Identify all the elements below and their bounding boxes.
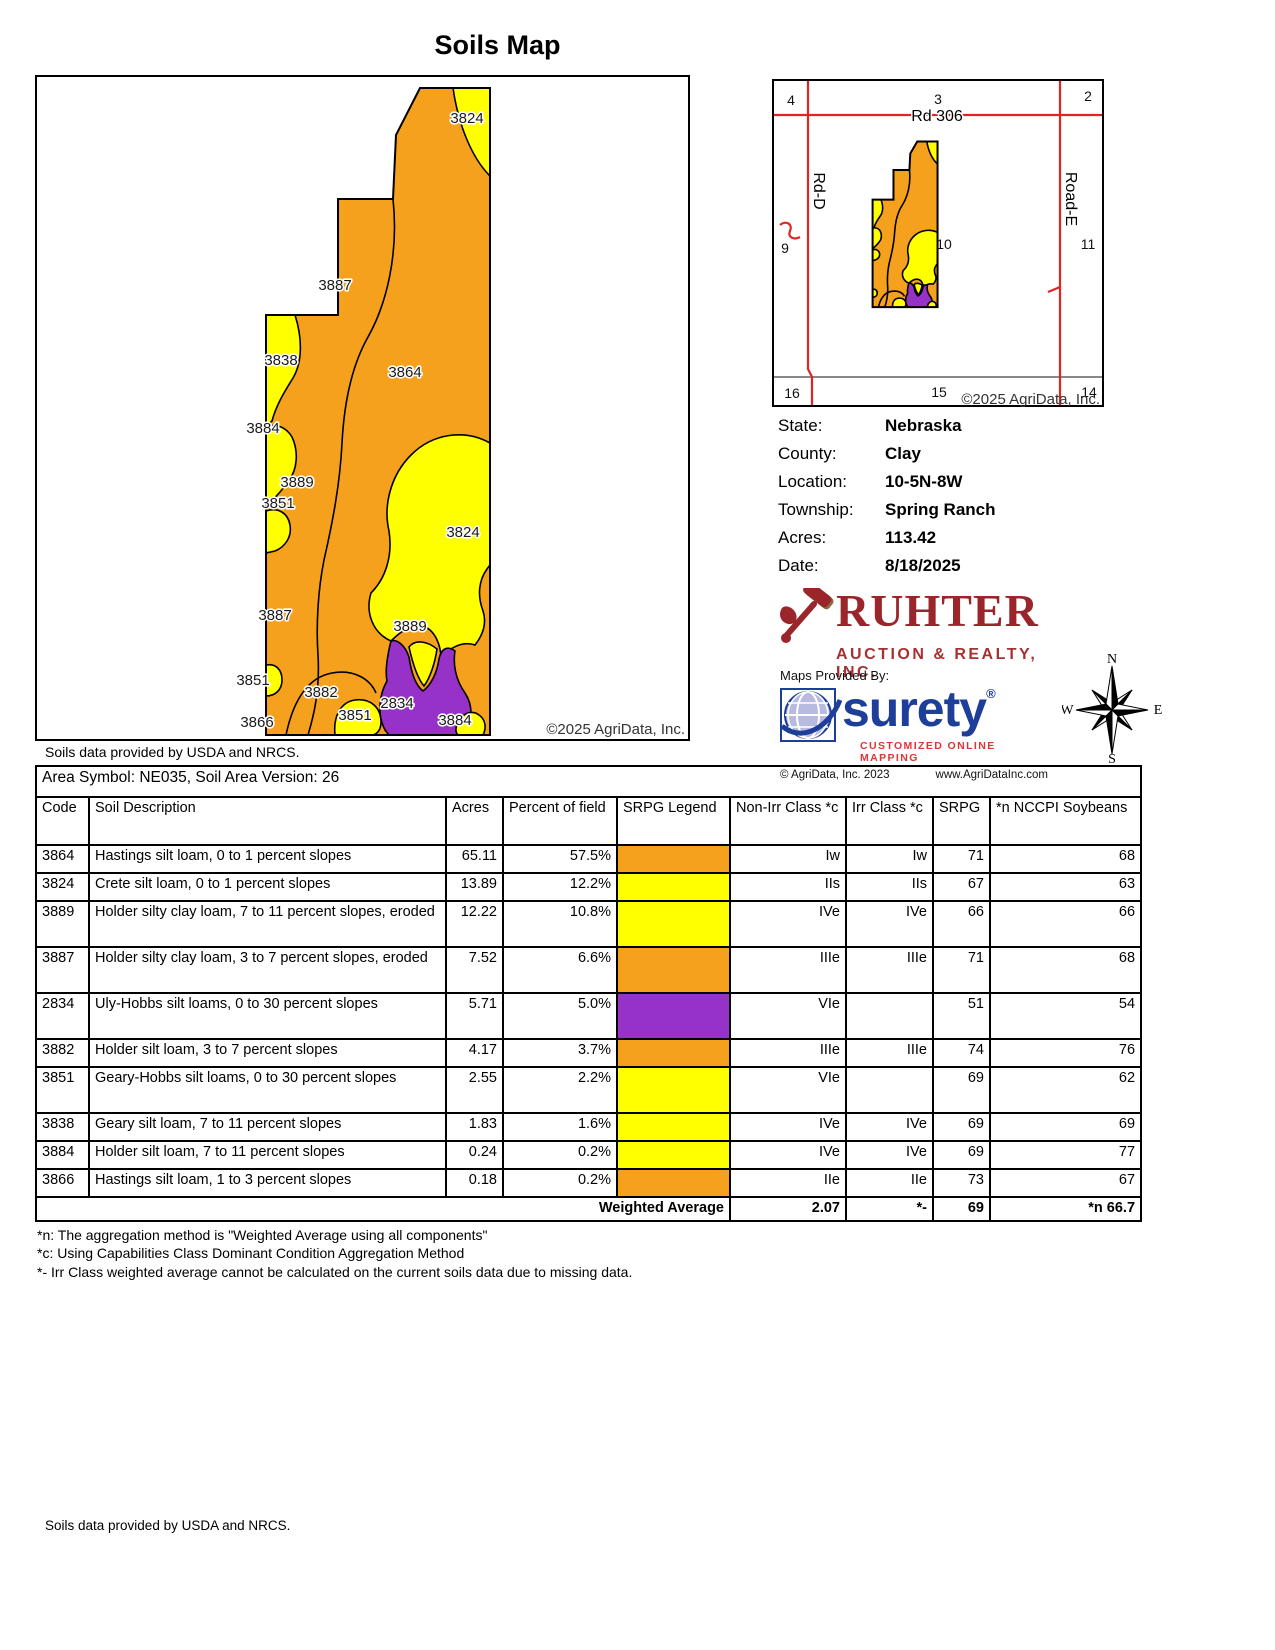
compass-e: E [1154,703,1162,718]
cell-non-irr: IVe [730,901,846,947]
cell-acres: 65.11 [446,845,503,873]
area-symbol-row: Area Symbol: NE035, Soil Area Version: 2… [36,766,1141,797]
section-number: 15 [931,384,947,400]
locator-map: 4 3 2 9 10 11 16 15 14 Rd 306 Rd-D Road-… [772,79,1104,407]
info-row-location: Location: 10-5N-8W [778,468,1108,496]
cell-code: 2834 [36,993,89,1039]
cell-acres: 0.18 [446,1169,503,1197]
soil-label: 3824 [450,110,483,127]
soil-label: 3824 [446,524,479,541]
info-value: Nebraska [885,416,962,436]
cell-legend-swatch [617,1067,730,1113]
cell-legend-swatch [617,993,730,1039]
locator-copyright: ©2025 AgriData, Inc. [961,391,1100,407]
surety-tagline: CUSTOMIZED ONLINE MAPPING [860,740,1050,764]
cell-legend-swatch [617,1141,730,1169]
cell-code: 3824 [36,873,89,901]
col-header-srpg: SRPG [933,797,990,845]
col-header-pct: Percent of field [503,797,617,845]
soil-label: 3884 [438,712,471,729]
cell-legend-swatch [617,947,730,993]
info-row-county: County: Clay [778,440,1108,468]
table-row: 3887Holder silty clay loam, 3 to 7 perce… [36,947,1141,993]
cell-percent: 0.2% [503,1141,617,1169]
info-label: County: [778,444,885,464]
cell-percent: 10.8% [503,901,617,947]
info-label: Location: [778,472,885,492]
cell-srpg: 51 [933,993,990,1039]
gavel-icon [778,588,836,644]
col-header-acres: Acres [446,797,503,845]
cell-srpg: 73 [933,1169,990,1197]
page-title: Soils Map [0,30,995,61]
weighted-average-row: Weighted Average 2.07 *- 69 *n 66.7 [36,1197,1141,1221]
weighted-irr: *- [846,1197,933,1221]
col-header-nccpi: *n NCCPI Soybeans [990,797,1141,845]
table-row: 3866Hastings silt loam, 1 to 3 percent s… [36,1169,1141,1197]
compass-w: W [1062,703,1074,718]
cell-description: Hastings silt loam, 0 to 1 percent slope… [89,845,446,873]
cell-irr: Iw [846,845,933,873]
cell-non-irr: VIe [730,1067,846,1113]
cell-non-irr: IIe [730,1169,846,1197]
cell-irr: IVe [846,1113,933,1141]
cell-code: 3887 [36,947,89,993]
soil-table-section: Area Symbol: NE035, Soil Area Version: 2… [35,765,1140,1222]
table-row: 3884Holder silt loam, 7 to 11 percent sl… [36,1141,1141,1169]
table-row: 3824Crete silt loam, 0 to 1 percent slop… [36,873,1141,901]
cell-nccpi: 68 [990,947,1141,993]
info-row-state: State: Nebraska [778,412,1108,440]
soil-label: 3838 [264,352,297,369]
cell-nccpi: 66 [990,901,1141,947]
cell-irr [846,993,933,1039]
cell-percent: 6.6% [503,947,617,993]
info-value: 113.42 [885,528,936,548]
cell-code: 3884 [36,1141,89,1169]
cell-non-irr: Iw [730,845,846,873]
col-header-irr: Irr Class *c [846,797,933,845]
cell-irr: IVe [846,901,933,947]
section-number: 4 [787,92,795,108]
soil-label: 3866 [240,714,273,731]
cell-acres: 13.89 [446,873,503,901]
cell-code: 3838 [36,1113,89,1141]
info-value: 8/18/2025 [885,556,961,576]
soil-label: 3851 [236,672,269,689]
cell-irr: IIIe [846,947,933,993]
cell-legend-swatch [617,1039,730,1067]
table-row: 3838Geary silt loam, 7 to 11 percent slo… [36,1113,1141,1141]
cell-code: 3851 [36,1067,89,1113]
cell-non-irr: VIe [730,993,846,1039]
cell-description: Geary-Hobbs silt loams, 0 to 30 percent … [89,1067,446,1113]
cell-non-irr: IIs [730,873,846,901]
section-number: 16 [784,385,800,401]
weighted-srpg: 69 [933,1197,990,1221]
cell-nccpi: 67 [990,1169,1141,1197]
soil-label: 3889 [393,618,426,635]
cell-percent: 5.0% [503,993,617,1039]
cell-acres: 7.52 [446,947,503,993]
table-row: 2834Uly-Hobbs silt loams, 0 to 30 percen… [36,993,1141,1039]
cell-legend-swatch [617,845,730,873]
soil-table: Area Symbol: NE035, Soil Area Version: 2… [35,765,1142,1222]
col-header-desc: Soil Description [89,797,446,845]
cell-legend-swatch [617,1113,730,1141]
info-row-date: Date: 8/18/2025 [778,552,1108,580]
cell-srpg: 69 [933,1141,990,1169]
cell-srpg: 71 [933,845,990,873]
cell-description: Crete silt loam, 0 to 1 percent slopes [89,873,446,901]
section-number: 3 [934,91,942,107]
cell-acres: 0.24 [446,1141,503,1169]
cell-nccpi: 68 [990,845,1141,873]
weighted-average-label: Weighted Average [36,1197,730,1221]
cell-irr: IVe [846,1141,933,1169]
cell-irr: IIe [846,1169,933,1197]
cell-code: 3882 [36,1039,89,1067]
cell-description: Holder silty clay loam, 3 to 7 percent s… [89,947,446,993]
cell-description: Holder silty clay loam, 7 to 11 percent … [89,901,446,947]
compass-rose-icon: N E S W [1062,652,1162,764]
cell-srpg: 71 [933,947,990,993]
cell-nccpi: 69 [990,1113,1141,1141]
cell-description: Geary silt loam, 7 to 11 percent slopes [89,1113,446,1141]
cell-description: Holder silt loam, 7 to 11 percent slopes [89,1141,446,1169]
road-label-rd306: Rd 306 [911,108,963,125]
cell-irr [846,1067,933,1113]
footnote-c: *c: Using Capabilities Class Dominant Co… [37,1244,632,1262]
soil-label: 3887 [318,277,351,294]
table-row: 3864Hastings silt loam, 0 to 1 percent s… [36,845,1141,873]
map-copyright: ©2025 AgriData, Inc. [546,721,685,738]
table-row: 3882Holder silt loam, 3 to 7 percent slo… [36,1039,1141,1067]
footnotes: *n: The aggregation method is "Weighted … [37,1226,632,1281]
soil-label: 3889 [280,474,313,491]
cell-non-irr: IIIe [730,1039,846,1067]
cell-percent: 2.2% [503,1067,617,1113]
cell-srpg: 66 [933,901,990,947]
cell-code: 3866 [36,1169,89,1197]
info-label: State: [778,416,885,436]
soils-map-report-page: Soils Map [0,0,1275,1650]
cell-non-irr: IVe [730,1113,846,1141]
soil-label: 3851 [261,495,294,512]
soil-label: 3864 [388,364,421,381]
soil-label: 2834 [380,695,413,712]
globe-icon [780,686,842,744]
info-label: Acres: [778,528,885,548]
road-label-roade: Road-E [1062,172,1079,226]
road-label-rdd: Rd-D [810,172,827,209]
soil-label: 3887 [258,607,291,624]
cell-percent: 12.2% [503,873,617,901]
compass-n: N [1107,652,1117,667]
section-number: 11 [1081,236,1096,252]
cell-description: Uly-Hobbs silt loams, 0 to 30 percent sl… [89,993,446,1039]
cell-acres: 2.55 [446,1067,503,1113]
soils-credit-top: Soils data provided by USDA and NRCS. [45,744,299,760]
table-header-row: Code Soil Description Acres Percent of f… [36,797,1141,845]
info-value: Spring Ranch [885,500,996,520]
cell-acres: 1.83 [446,1113,503,1141]
cell-percent: 1.6% [503,1113,617,1141]
cell-description: Holder silt loam, 3 to 7 percent slopes [89,1039,446,1067]
cell-srpg: 69 [933,1067,990,1113]
cell-nccpi: 63 [990,873,1141,901]
compass-s: S [1108,752,1116,764]
cell-acres: 12.22 [446,901,503,947]
area-symbol-title: Area Symbol: NE035, Soil Area Version: 2… [36,766,1141,797]
col-header-nonirr: Non-Irr Class *c [730,797,846,845]
soil-label: 3882 [304,684,337,701]
cell-acres: 5.71 [446,993,503,1039]
cell-srpg: 74 [933,1039,990,1067]
property-info: State: Nebraska County: Clay Location: 1… [778,412,1108,580]
cell-percent: 0.2% [503,1169,617,1197]
registered-mark: ® [986,686,996,701]
info-row-township: Township: Spring Ranch [778,496,1108,524]
cell-nccpi: 62 [990,1067,1141,1113]
surety-wordmark: surety [842,681,986,737]
section-number: 2 [1084,88,1092,104]
footnote-dash: *- Irr Class weighted average cannot be … [37,1263,632,1281]
weighted-nccpi: *n 66.7 [990,1197,1141,1221]
col-header-code: Code [36,797,89,845]
cell-nccpi: 54 [990,993,1141,1039]
soil-label: 3884 [246,420,279,437]
weighted-nonirr: 2.07 [730,1197,846,1221]
cell-non-irr: IIIe [730,947,846,993]
cell-code: 3889 [36,901,89,947]
section-number: 9 [781,240,789,256]
cell-acres: 4.17 [446,1039,503,1067]
info-value: Clay [885,444,921,464]
cell-code: 3864 [36,845,89,873]
cell-nccpi: 77 [990,1141,1141,1169]
info-value: 10-5N-8W [885,472,962,492]
cell-nccpi: 76 [990,1039,1141,1067]
cell-legend-swatch [617,1169,730,1197]
cell-srpg: 67 [933,873,990,901]
cell-irr: IIs [846,873,933,901]
cell-srpg: 69 [933,1113,990,1141]
cell-description: Hastings silt loam, 1 to 3 percent slope… [89,1169,446,1197]
soil-map: 3824 3887 3838 3864 3884 3889 3851 3824 … [35,75,690,741]
table-row: 3889Holder silty clay loam, 7 to 11 perc… [36,901,1141,947]
section-number: 10 [936,236,952,252]
soil-label: 3851 [338,707,371,724]
info-row-acres: Acres: 113.42 [778,524,1108,552]
info-label: Township: [778,500,885,520]
col-header-legend: SRPG Legend [617,797,730,845]
info-label: Date: [778,556,885,576]
soils-credit-bottom: Soils data provided by USDA and NRCS. [45,1518,290,1533]
footnote-n: *n: The aggregation method is "Weighted … [37,1226,632,1244]
cell-non-irr: IVe [730,1141,846,1169]
cell-percent: 3.7% [503,1039,617,1067]
cell-percent: 57.5% [503,845,617,873]
ruhter-name: RUHTER [836,588,1039,634]
cell-legend-swatch [617,873,730,901]
cell-legend-swatch [617,901,730,947]
cell-irr: IIIe [846,1039,933,1067]
table-row: 3851Geary-Hobbs silt loams, 0 to 30 perc… [36,1067,1141,1113]
